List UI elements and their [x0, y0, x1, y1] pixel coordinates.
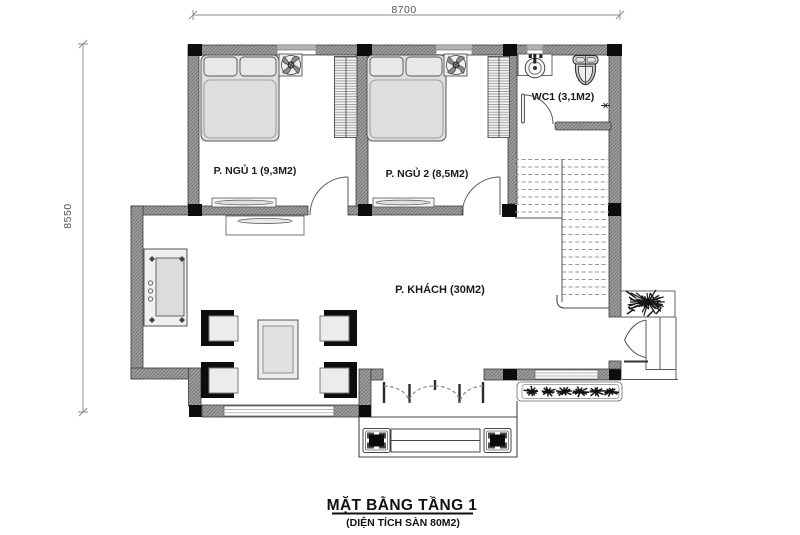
svg-text:8700: 8700: [391, 4, 416, 16]
svg-text:WC1 (3,1M2): WC1 (3,1M2): [532, 91, 594, 103]
svg-text:P. NGỦ 2 (8,5M2): P. NGỦ 2 (8,5M2): [386, 167, 469, 180]
svg-text:MẶT BẰNG TẦNG 1: MẶT BẰNG TẦNG 1: [327, 496, 478, 514]
svg-text:P. NGỦ 1 (9,3M2): P. NGỦ 1 (9,3M2): [214, 164, 297, 177]
svg-text:(DIỆN TÍCH SÀN 80M2): (DIỆN TÍCH SÀN 80M2): [346, 516, 460, 529]
svg-text:8550: 8550: [62, 203, 74, 228]
svg-text:P. KHÁCH (30M2): P. KHÁCH (30M2): [395, 283, 485, 296]
